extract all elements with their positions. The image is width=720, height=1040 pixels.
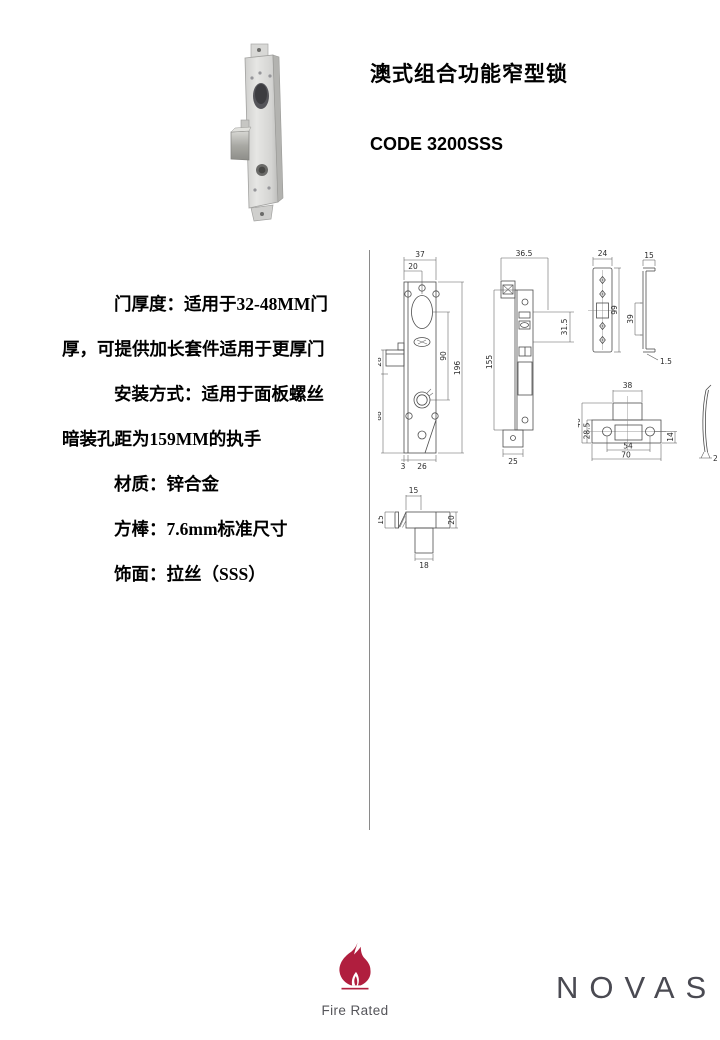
dim-label: 14 bbox=[666, 432, 675, 442]
spec-text-block: 门厚度：适用于32-48MM门 厚，可提供加长套件适用于更厚门 安装方式：适用于… bbox=[62, 282, 376, 597]
dim-label: 26 bbox=[417, 462, 427, 471]
dim-label: 3 bbox=[401, 462, 406, 471]
dim-label: 28.5 bbox=[583, 422, 592, 439]
dim-label: 70 bbox=[621, 451, 631, 460]
spec-install-line1: 安装方式：适用于面板螺丝 bbox=[62, 372, 376, 417]
product-photo bbox=[213, 40, 313, 222]
spec-spindle-line: 方棒：7.6mm标准尺寸 bbox=[62, 507, 376, 552]
dim-label: 88 bbox=[378, 411, 383, 421]
spec-spindle-label: 方棒： bbox=[114, 519, 167, 539]
spec-material-value: 锌合金 bbox=[167, 474, 220, 494]
dim-label: 31.5 bbox=[560, 318, 569, 335]
spec-finish-line: 饰面：拉丝（SSS） bbox=[62, 552, 376, 597]
dim-label: 18 bbox=[419, 561, 429, 570]
dim-label: 90 bbox=[439, 351, 448, 361]
dim-label: 24 bbox=[598, 249, 608, 258]
dim-label: 20 bbox=[408, 262, 418, 271]
dim-label: 15 bbox=[644, 251, 654, 260]
dim-label: 28 bbox=[378, 357, 383, 367]
spec-install-value1: 适用于面板螺丝 bbox=[202, 384, 325, 404]
fire-rated-label: Fire Rated bbox=[298, 1003, 412, 1018]
spec-install-value2: 暗装孔距为159MM的执手 bbox=[62, 429, 261, 449]
spec-material-label: 材质： bbox=[114, 474, 167, 494]
lock-front-drawing: 37 20 28 88 90 196 3 26 bbox=[378, 250, 493, 475]
dim-label: 2 bbox=[713, 454, 718, 463]
dim-label: 46 bbox=[578, 418, 582, 428]
brand-logotype: NOVAS bbox=[556, 970, 717, 1006]
spec-material-line: 材质：锌合金 bbox=[62, 462, 376, 507]
latch-detail-drawing: 15 15 20 18 bbox=[378, 483, 463, 578]
dim-label: 155 bbox=[486, 355, 494, 370]
dim-label: 1.5 bbox=[660, 357, 672, 366]
fire-rated-logo: Fire Rated bbox=[298, 940, 412, 1018]
dim-label: 39 bbox=[626, 314, 635, 324]
spec-finish-label: 饰面： bbox=[114, 564, 167, 584]
spec-door-label: 门厚度： bbox=[114, 294, 184, 314]
spec-door-line2: 厚，可提供加长套件适用于更厚门 bbox=[62, 327, 376, 372]
strike-plate-drawing: 24 99 15 39 1.5 bbox=[583, 248, 678, 373]
dim-label: 36.5 bbox=[516, 250, 533, 258]
vertical-divider bbox=[369, 250, 370, 830]
spec-spindle-value: 7.6mm标准尺寸 bbox=[167, 519, 288, 539]
spec-door-value1: 适用于32-48MM门 bbox=[184, 294, 328, 314]
faceplate-drawing: 36.5 155 25 31.5 bbox=[486, 250, 586, 475]
dim-label: 15 bbox=[378, 515, 385, 525]
product-code: CODE 3200SSS bbox=[370, 134, 503, 155]
dim-label: 54 bbox=[623, 442, 633, 451]
lock-body-illustration bbox=[231, 44, 283, 221]
spec-install-label: 安装方式： bbox=[114, 384, 202, 404]
dim-label: 196 bbox=[453, 361, 462, 376]
dim-label: 99 bbox=[610, 305, 619, 315]
dim-label: 20 bbox=[447, 515, 456, 525]
flame-icon bbox=[331, 940, 379, 994]
spec-door-line1: 门厚度：适用于32-48MM门 bbox=[62, 282, 376, 327]
spec-sheet-page: 澳式组合功能窄型锁 CODE 3200SSS 门厚度：适用于32-48MM门 厚… bbox=[0, 0, 720, 1040]
dim-label: 38 bbox=[623, 381, 633, 390]
page-title: 澳式组合功能窄型锁 bbox=[370, 58, 568, 88]
dim-label: 37 bbox=[415, 250, 425, 259]
spec-finish-value: 拉丝（SSS） bbox=[167, 564, 266, 584]
spec-door-value2: 厚，可提供加长套件适用于更厚门 bbox=[62, 339, 325, 359]
dim-label: 15 bbox=[409, 486, 419, 495]
spec-install-line2: 暗装孔距为159MM的执手 bbox=[62, 417, 376, 462]
dim-label: 25 bbox=[508, 457, 518, 466]
box-strike-drawing: 38 46 28.5 54 70 14 2 bbox=[578, 378, 720, 470]
